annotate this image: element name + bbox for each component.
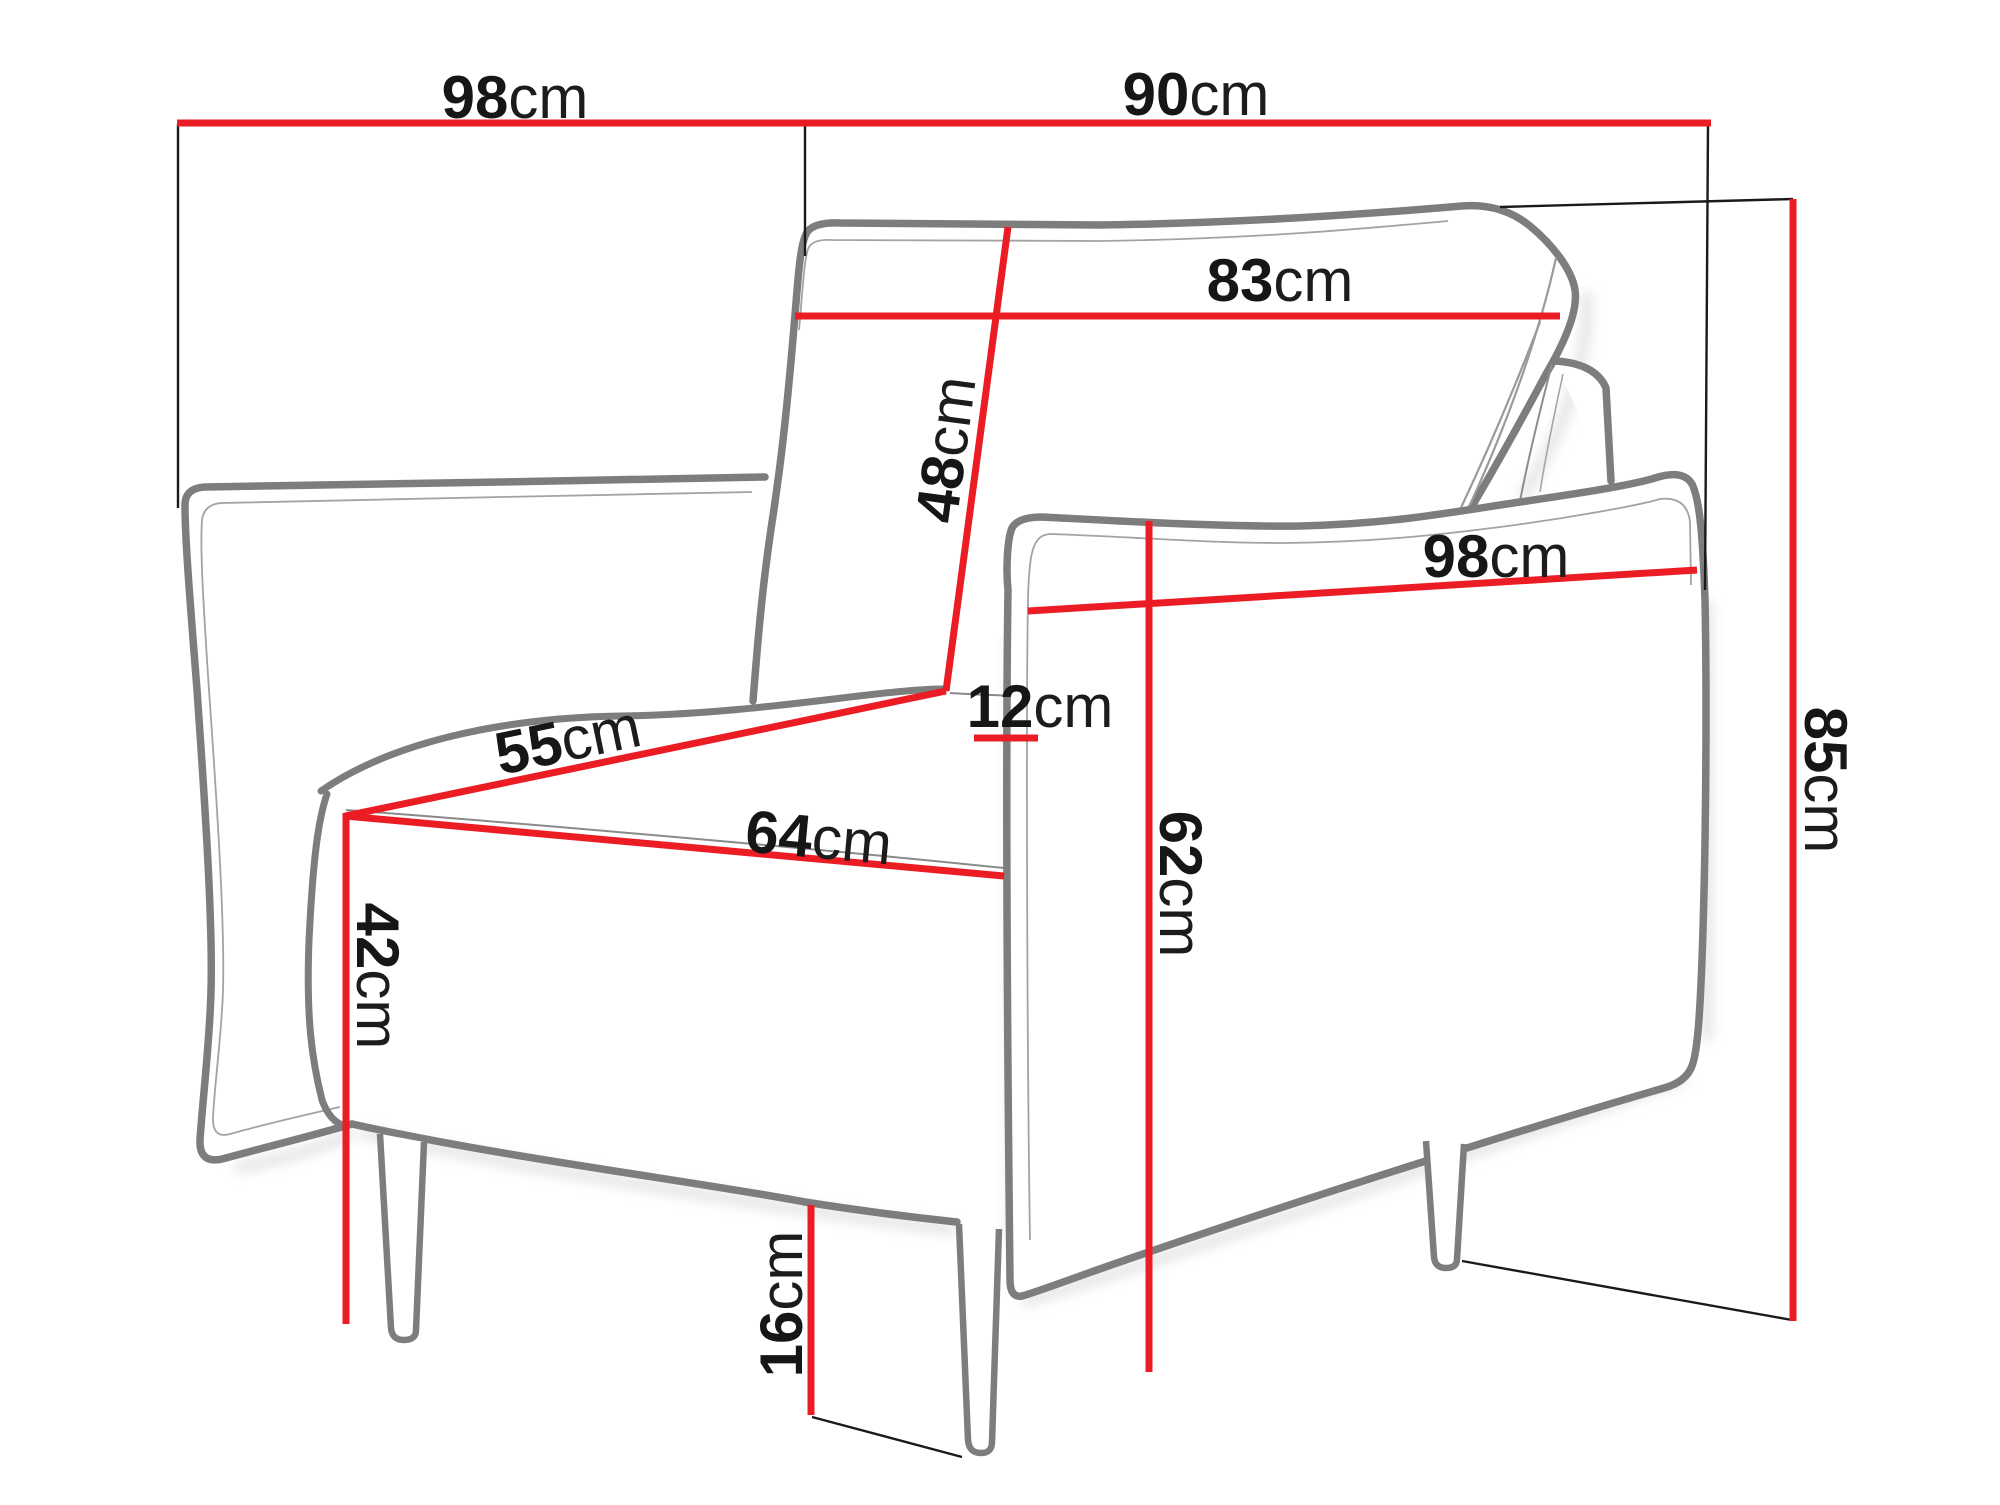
- svg-text:16cm: 16cm: [748, 1231, 815, 1378]
- svg-text:90cm: 90cm: [1123, 61, 1270, 128]
- svg-text:12cm: 12cm: [967, 673, 1114, 740]
- svg-text:64cm: 64cm: [743, 798, 895, 878]
- svg-text:98cm: 98cm: [442, 64, 589, 131]
- svg-text:85cm: 85cm: [1792, 707, 1859, 854]
- svg-text:42cm: 42cm: [344, 903, 411, 1050]
- svg-text:83cm: 83cm: [1207, 247, 1354, 314]
- svg-text:98cm: 98cm: [1423, 523, 1570, 590]
- svg-text:62cm: 62cm: [1147, 811, 1214, 958]
